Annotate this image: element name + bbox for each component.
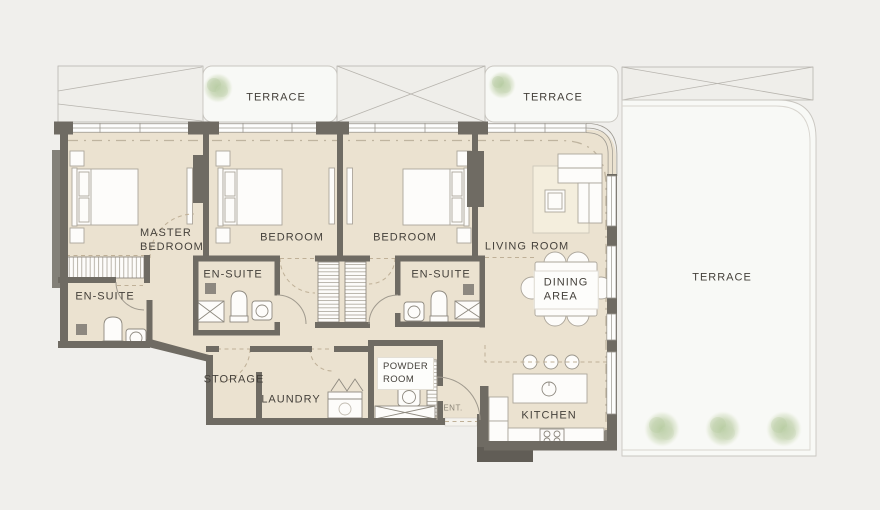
terrace-right-label: TERRACE (692, 271, 752, 285)
powder-room-label-line1: POWDER (383, 361, 428, 374)
master-wardrobe-symbol (66, 257, 144, 278)
master-console-symbol (187, 168, 193, 224)
terrace-top-left-label: TERRACE (246, 91, 306, 105)
crossed-zone-top-left (58, 66, 203, 122)
tree-symbol (705, 411, 741, 447)
kitchen-island-symbol (513, 374, 587, 403)
terrace-top-center-label: TERRACE (523, 91, 583, 105)
crossed-zone-top-right (622, 67, 813, 100)
living-room-label: LIVING ROOM (485, 240, 569, 254)
dining-area-label-line1: DINING (544, 277, 589, 291)
bedroom-2-label: BEDROOM (260, 231, 324, 245)
dining-area-label-line2: AREA (544, 290, 589, 304)
dining-area-label: DINING AREA (534, 271, 599, 310)
bedroom2-console-symbol (329, 168, 335, 224)
master-bedroom-label-line2: BEDROOM (140, 241, 204, 255)
ensuite-3-label: EN-SUITE (411, 268, 470, 282)
powder-room-label: POWDER ROOM (377, 357, 434, 390)
master-bedroom-label-line1: MASTER (140, 227, 204, 241)
tree-symbol (203, 73, 233, 103)
crossed-zone-top-center (337, 66, 485, 122)
ensuite-master-label: EN-SUITE (75, 290, 134, 304)
kitchen-label: KITCHEN (521, 409, 576, 423)
storage-label: STORAGE (204, 373, 265, 387)
bedroom-3-label: BEDROOM (373, 231, 437, 245)
master-bedroom-label: MASTER BEDROOM (140, 227, 204, 254)
entrance-label: ENT. (443, 401, 462, 415)
floorplan-page: TERRACE TERRACE TERRACE MASTER BEDROOM B… (0, 0, 880, 510)
tree-symbol (644, 411, 680, 447)
tree-symbol (766, 411, 802, 447)
floorplan-graphic (0, 0, 880, 510)
coffee-table-symbol (545, 190, 565, 212)
laundry-label: LAUNDRY (261, 393, 320, 407)
ensuite-2-label: EN-SUITE (203, 268, 262, 282)
tree-symbol (488, 71, 516, 99)
powder-room-label-line2: ROOM (383, 374, 428, 387)
bedroom3-console-symbol (347, 168, 353, 224)
